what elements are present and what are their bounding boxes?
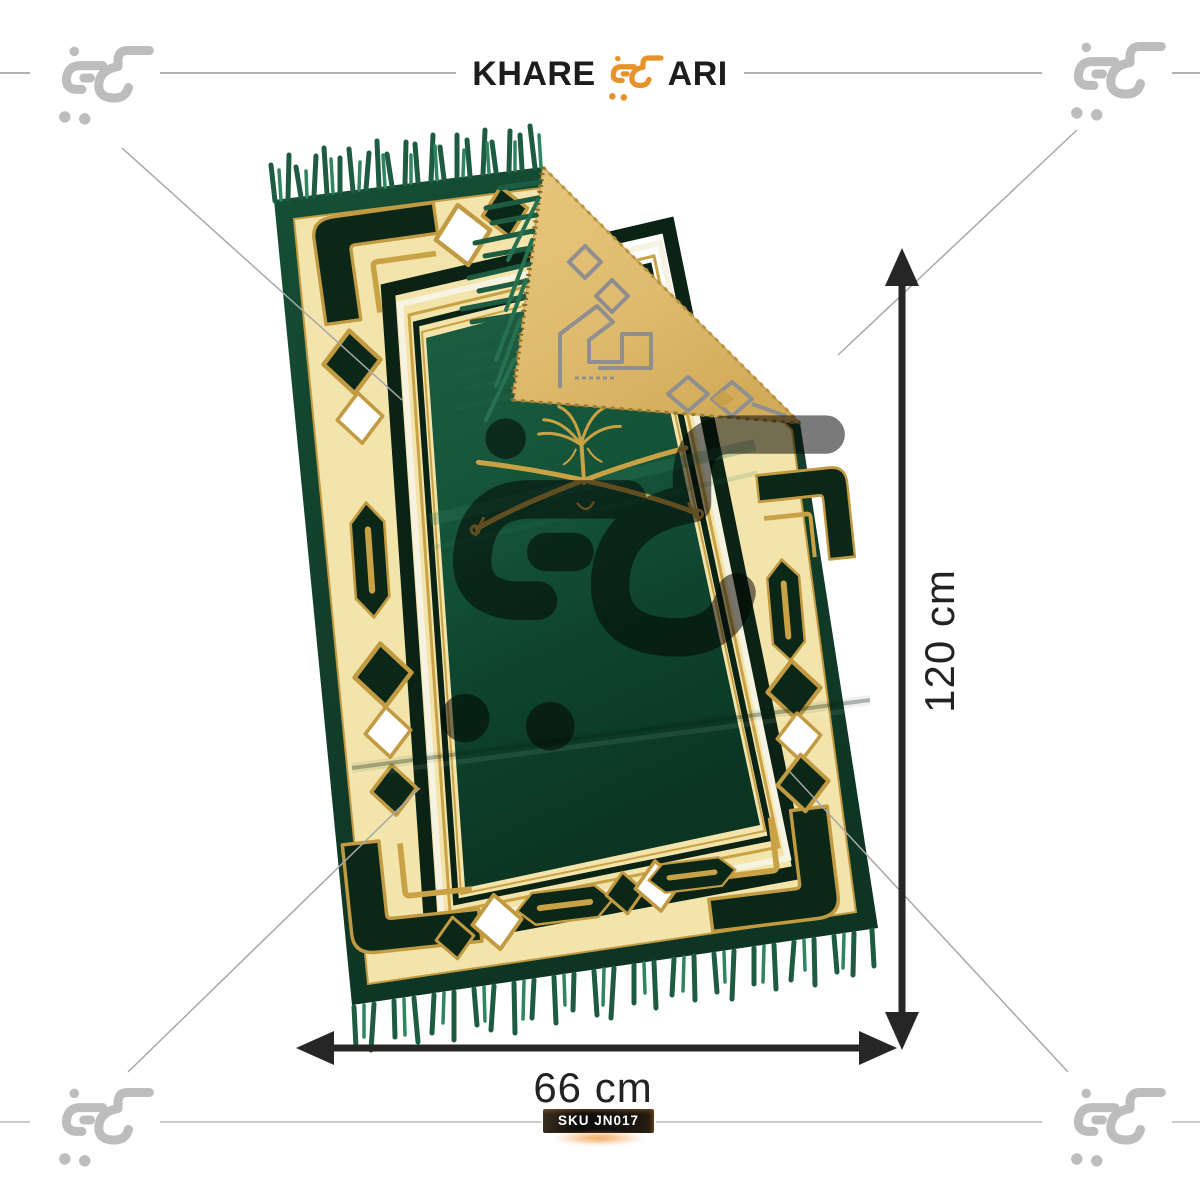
width-dimension-label: 66 cm <box>493 1064 693 1112</box>
wordmark-right-text: ARI <box>668 44 728 104</box>
height-arrow <box>885 248 919 1050</box>
corner-watermark-bottom-left <box>30 1074 160 1174</box>
width-arrow <box>296 1031 897 1065</box>
wordmark-left-text: KHARE <box>472 44 595 104</box>
height-dimension-label: 120 cm <box>917 559 963 723</box>
mat-fold-triangle <box>512 167 800 423</box>
khareedari-cart-icon <box>593 52 671 104</box>
product-scene <box>0 0 1200 1200</box>
corner-watermark-bottom-right <box>1042 1074 1172 1174</box>
sku-badge: SKU JN017 <box>543 1109 654 1133</box>
brand-wordmark: KHARE ARI <box>0 44 1200 104</box>
product-image-card: KHARE ARI 120 cm 66 cm SKU JN017 <box>0 0 1200 1200</box>
